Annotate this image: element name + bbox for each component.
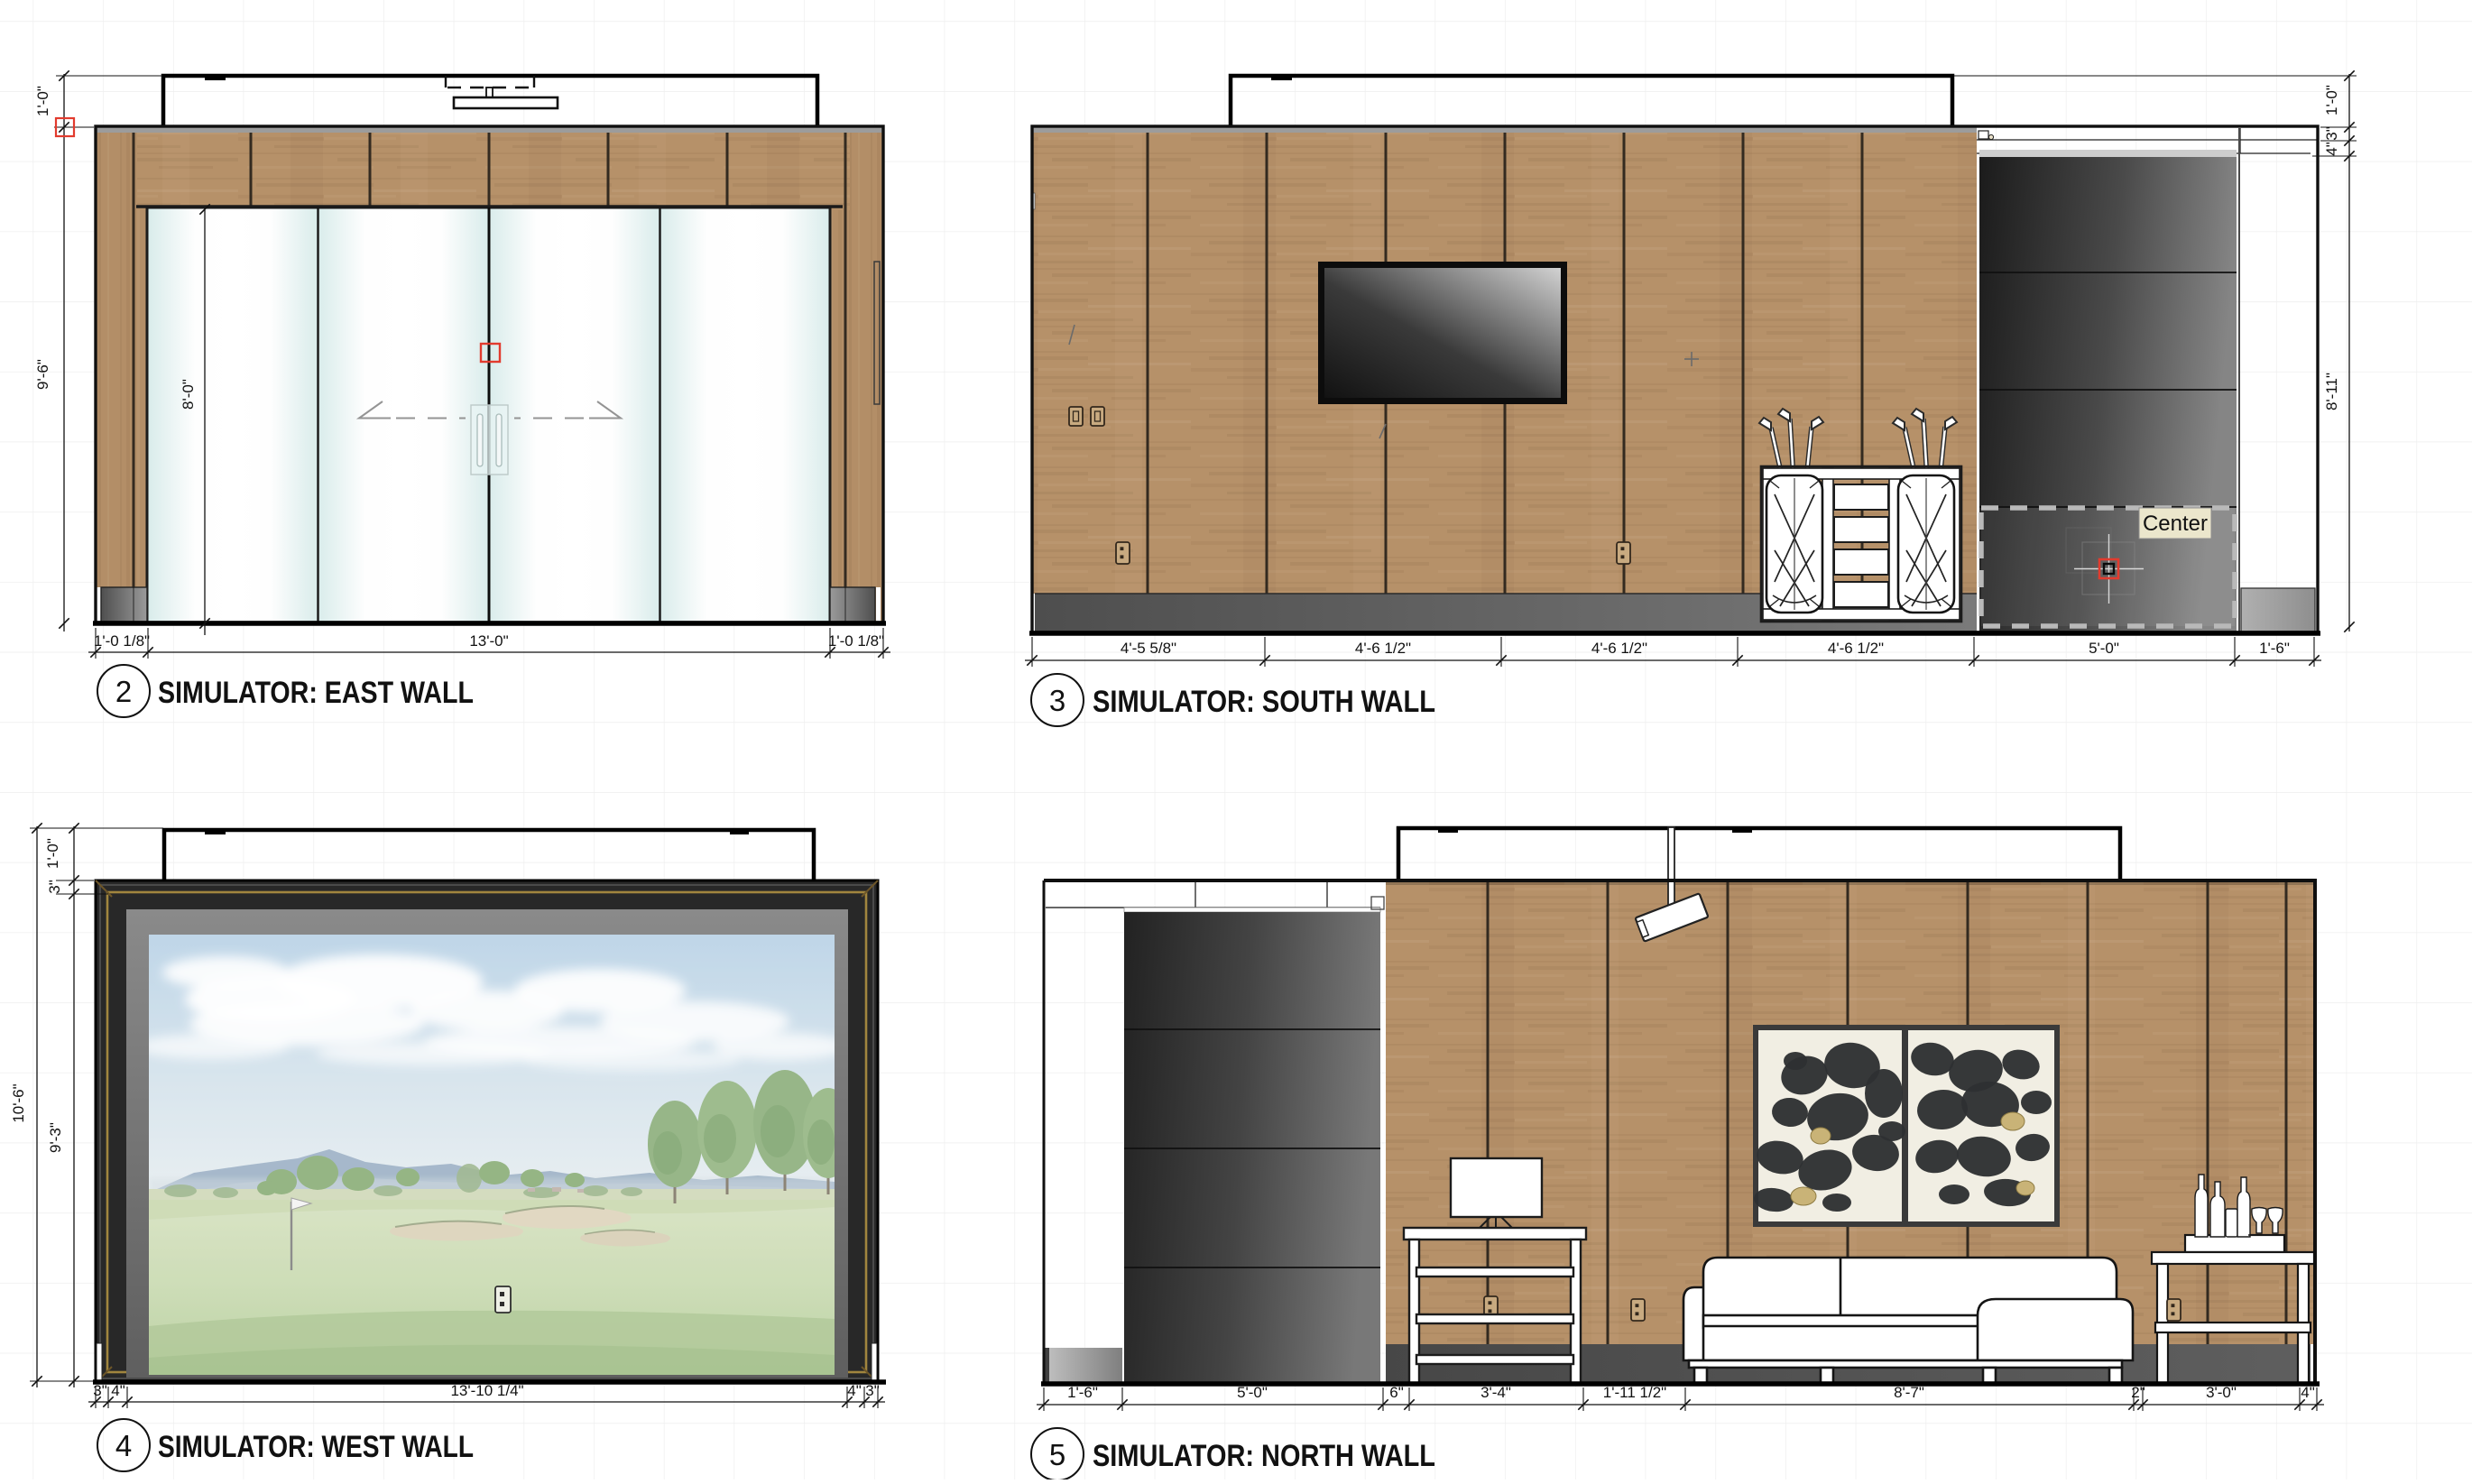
svg-text:4: 4 [115, 1429, 132, 1462]
svg-text:8'-7": 8'-7" [1894, 1384, 1924, 1401]
svg-text:8'-11": 8'-11" [2323, 373, 2340, 410]
svg-text:13'-0": 13'-0" [469, 632, 508, 650]
svg-text:Center: Center [2143, 512, 2208, 536]
svg-text:1'-0 1/8": 1'-0 1/8" [828, 632, 884, 650]
svg-text:8'-0": 8'-0" [180, 379, 197, 410]
svg-text:3": 3" [865, 1382, 880, 1399]
svg-text:4": 4" [111, 1382, 125, 1399]
svg-text:6": 6" [1389, 1384, 1404, 1401]
svg-text:5'-0": 5'-0" [2089, 640, 2119, 657]
svg-text:4": 4" [847, 1382, 862, 1399]
svg-text:1'-0 1/8": 1'-0 1/8" [94, 632, 150, 650]
svg-text:SIMULATOR: SOUTH WALL: SIMULATOR: SOUTH WALL [1093, 685, 1435, 719]
svg-text:4": 4" [2323, 142, 2340, 156]
svg-text:4'-5 5/8": 4'-5 5/8" [1121, 640, 1176, 657]
svg-text:4'-6 1/2": 4'-6 1/2" [1355, 640, 1411, 657]
svg-text:2": 2" [2131, 1384, 2145, 1401]
svg-text:4'-6 1/2": 4'-6 1/2" [1591, 640, 1647, 657]
svg-text:13'-10 1/4": 13'-10 1/4" [450, 1382, 523, 1399]
svg-text:3: 3 [1049, 684, 1065, 717]
svg-text:9'-3": 9'-3" [47, 1122, 64, 1153]
svg-text:4": 4" [2301, 1384, 2315, 1401]
svg-text:10'-6": 10'-6" [10, 1083, 27, 1122]
svg-text:3'-4": 3'-4" [1480, 1384, 1511, 1401]
svg-text:3": 3" [2323, 126, 2340, 141]
svg-text:3": 3" [93, 1382, 107, 1399]
svg-text:4'-6 1/2": 4'-6 1/2" [1828, 640, 1884, 657]
svg-text:SIMULATOR: NORTH WALL: SIMULATOR: NORTH WALL [1093, 1439, 1435, 1473]
svg-text:SIMULATOR: WEST WALL: SIMULATOR: WEST WALL [158, 1430, 474, 1464]
svg-text:5: 5 [1049, 1438, 1065, 1471]
svg-text:3": 3" [46, 880, 63, 894]
svg-text:1'-0": 1'-0" [34, 86, 51, 116]
svg-text:SIMULATOR: EAST WALL: SIMULATOR: EAST WALL [158, 676, 474, 710]
svg-text:1'-0": 1'-0" [2323, 85, 2340, 115]
svg-text:1'-0": 1'-0" [44, 838, 61, 869]
svg-text:5'-0": 5'-0" [1237, 1384, 1268, 1401]
svg-text:3'-0": 3'-0" [2206, 1384, 2237, 1401]
svg-text:1'-6": 1'-6" [1067, 1384, 1098, 1401]
svg-text:9'-6": 9'-6" [34, 359, 51, 390]
svg-text:1'-11 1/2": 1'-11 1/2" [1603, 1384, 1666, 1401]
svg-text:2: 2 [115, 675, 132, 708]
svg-text:1'-6": 1'-6" [2259, 640, 2290, 657]
